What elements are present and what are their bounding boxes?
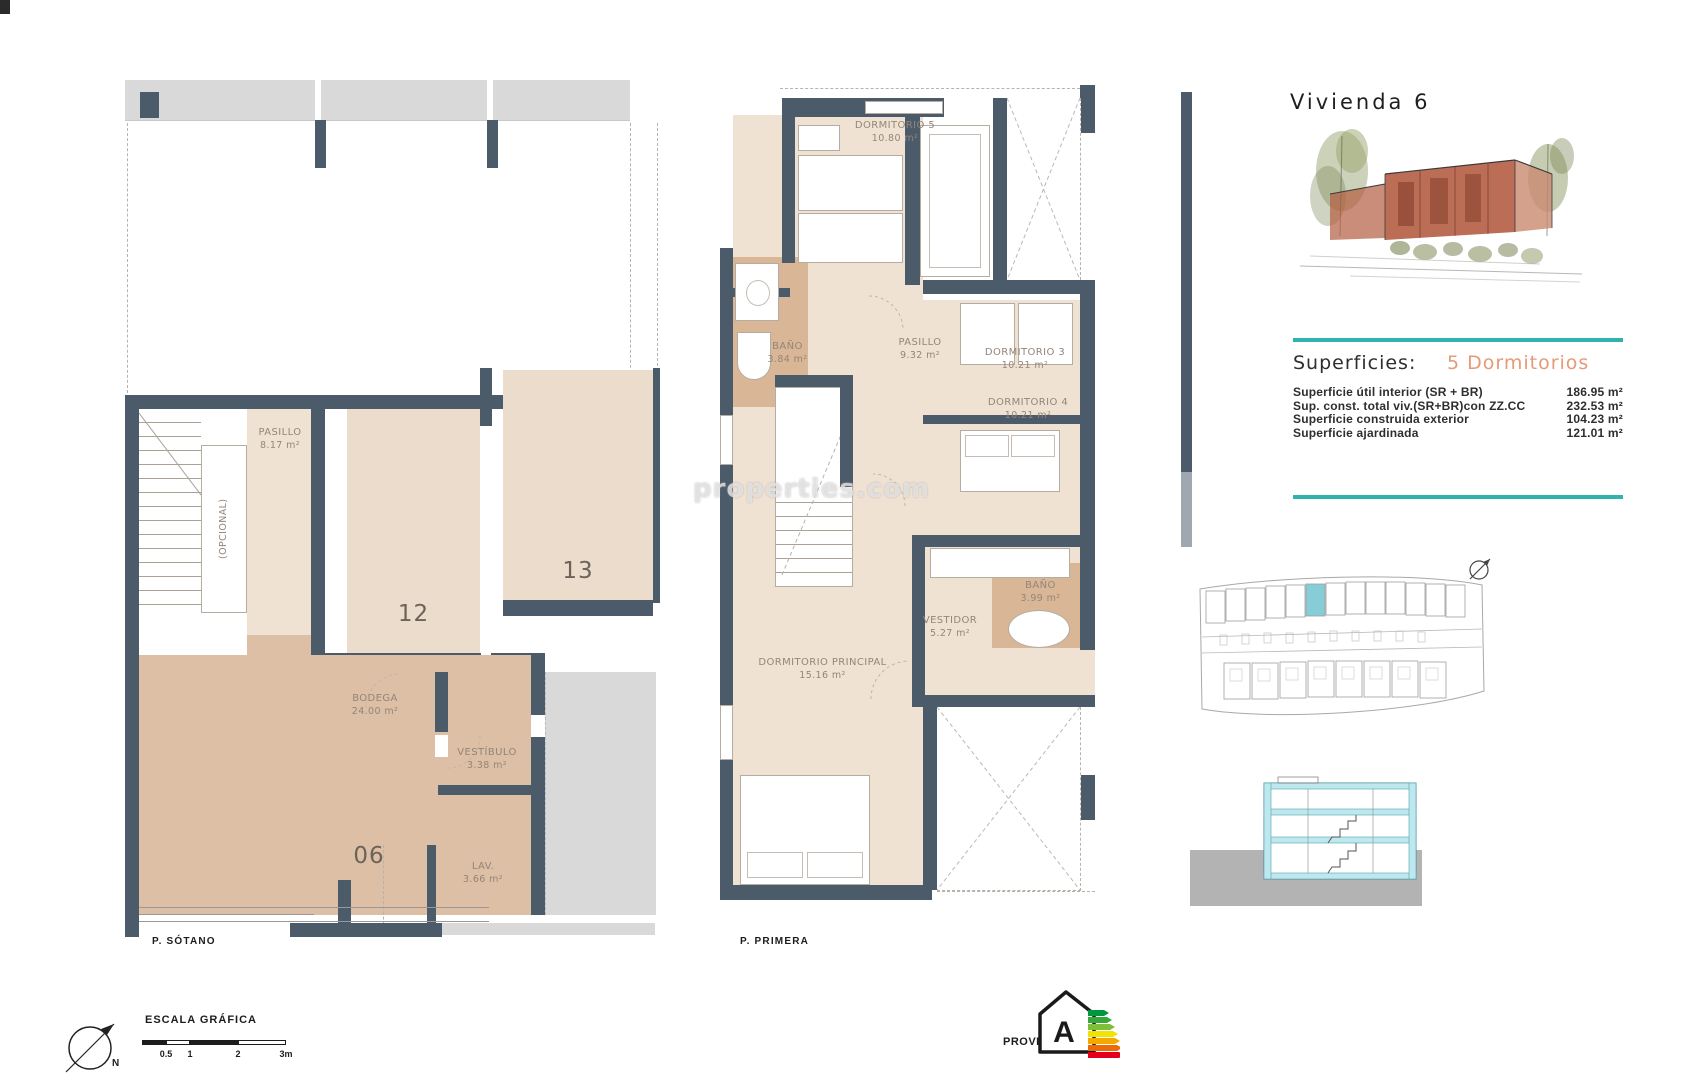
bedrooms-heading: 5 Dormitorios (1447, 352, 1589, 374)
wall-segment (775, 375, 853, 387)
bed-pillow (1011, 435, 1055, 457)
scale-tick-label: 2 (226, 1049, 250, 1059)
surface-label: Sup. const. total viv.(SR+BR)con ZZ.CC (1293, 400, 1525, 414)
room-label-pasillo: PASILLO 9.32 m² (870, 337, 970, 362)
room-label-principal: DORMITORIO PRINCIPAL 15.16 m² (740, 657, 905, 682)
wall-segment (720, 885, 932, 900)
divider-bar (1181, 92, 1192, 472)
wall-segment (487, 120, 498, 168)
site-unit-highlight (1306, 584, 1325, 616)
bed (740, 775, 870, 885)
wall-segment (1080, 85, 1095, 133)
wall-segment (840, 387, 853, 487)
plan-caption-sotano: P. SÓTANO (152, 936, 216, 947)
plot-boundary-dashed (780, 88, 1085, 89)
void-double-height (937, 707, 1081, 891)
teal-rule (1293, 338, 1623, 342)
surface-row: Superficie construida exterior 104.23 m² (1293, 413, 1623, 427)
garage-door-line (139, 914, 314, 915)
void-x-mark (937, 707, 1080, 890)
scale-tick-label: 1 (178, 1049, 202, 1059)
bed (798, 155, 903, 211)
wall-segment (503, 600, 653, 616)
scale-tick-label: 3m (274, 1049, 298, 1059)
wall-segment (125, 395, 517, 409)
band-gap (315, 80, 321, 120)
plot-boundary-dashed (127, 123, 128, 393)
surface-value: 186.95 m² (1566, 386, 1623, 400)
patio-gray (545, 672, 656, 915)
wall-segment (720, 248, 733, 900)
room-label-bano1: BAÑO 3.84 m² (750, 341, 825, 366)
wall-segment (923, 695, 937, 890)
wall-segment (480, 368, 492, 426)
watermark: properties.com (693, 474, 930, 504)
window (720, 705, 733, 760)
optional-closet: (OPCIONAL) (201, 445, 247, 613)
sidewalk-band (442, 923, 655, 935)
wall-segment (993, 98, 1007, 288)
garage-door-line (139, 907, 489, 908)
void-double-height (1007, 98, 1081, 280)
closet-inner (929, 134, 981, 268)
room-label-dorm4: DORMITORIO 4 10.21 m² (963, 397, 1093, 422)
scale-bar-segment (190, 1040, 238, 1045)
wall-segment (1080, 775, 1095, 820)
stair-diagonal (139, 409, 201, 499)
wall-segment (140, 92, 159, 118)
sidewalk-band (125, 80, 630, 121)
window (865, 101, 943, 114)
room-label-dorm5: DORMITORIO 5 10.80 m² (815, 120, 975, 145)
closet (920, 125, 990, 277)
bed (798, 213, 903, 263)
wall-segment (125, 395, 139, 937)
bed-pillow (747, 852, 803, 878)
plot-boundary-dashed (630, 123, 631, 393)
bathtub (1008, 610, 1070, 648)
floorplan-sotano: (OPCIONAL) PASILLO 8.17 m² 12 13 (125, 75, 660, 937)
house-sketch (1290, 116, 1592, 286)
sheet-corner-mark (0, 0, 10, 14)
room-label-bodega: BODEGA 24.00 m² (275, 693, 475, 718)
wall-segment (923, 280, 1095, 294)
surface-value: 121.01 m² (1566, 427, 1623, 441)
plot-boundary-dashed (937, 891, 1095, 892)
window (720, 415, 733, 465)
sink-basin (746, 280, 770, 306)
door-swing-arc (868, 295, 904, 331)
scale-heading: ESCALA GRÁFICA (145, 1014, 257, 1026)
surface-row: Sup. const. total viv.(SR+BR)con ZZ.CC 2… (1293, 400, 1623, 414)
wall-segment (315, 120, 326, 168)
wall-segment (782, 98, 795, 263)
surface-label: Superficie construida exterior (1293, 413, 1469, 427)
room-label-vestibulo: VESTÍBULO 3.38 m² (445, 747, 529, 772)
north-label: N (112, 1058, 119, 1069)
surface-label: Superficie ajardinada (1293, 427, 1419, 441)
room-label-bano2: BAÑO 3.99 m² (998, 580, 1083, 605)
wall-segment (438, 785, 533, 795)
door-opening (531, 715, 545, 737)
surface-table: Superficie útil interior (SR + BR) 186.9… (1293, 386, 1623, 440)
surface-value: 232.53 m² (1566, 400, 1623, 414)
parking-13-number: 13 (503, 558, 653, 584)
scale-bar-segment (166, 1040, 190, 1045)
wall-segment (923, 535, 1095, 547)
band-gap (487, 80, 493, 120)
room-label-dorm3: DORMITORIO 3 10.21 m² (960, 347, 1090, 372)
scale-bar-segment (142, 1040, 166, 1045)
void-x-mark (1007, 98, 1080, 280)
room-label-lav: LAV. 3.66 m² (437, 861, 529, 886)
parking-12-number: 12 (347, 601, 480, 627)
wall-segment (653, 368, 660, 603)
scale-tick-label: 0.5 (154, 1049, 178, 1059)
bathroom-sink (735, 263, 779, 321)
wall-segment (311, 409, 325, 653)
unit-06-number: 06 (333, 843, 405, 869)
energy-letter: A (1053, 1016, 1075, 1049)
divider-bar-light (1181, 472, 1192, 547)
surface-label: Superficie útil interior (SR + BR) (1293, 386, 1483, 400)
wall-segment (912, 695, 1095, 707)
scale-bar-segment (238, 1040, 286, 1045)
surface-value: 104.23 m² (1566, 413, 1623, 427)
teal-rule (1293, 495, 1623, 499)
garage-door-line (139, 921, 489, 922)
superficies-heading: Superficies: (1293, 352, 1416, 374)
surface-row: Superficie útil interior (SR + BR) 186.9… (1293, 386, 1623, 400)
plan-caption-primera: P. PRIMERA (740, 936, 809, 947)
bodega-floor (247, 635, 311, 665)
closet (930, 548, 1070, 578)
room-label-vestidor: VESTIDOR 5.27 m² (905, 615, 995, 640)
wall-segment (531, 653, 545, 915)
bed (960, 430, 1060, 492)
surface-row: Superficie ajardinada 121.01 m² (1293, 427, 1623, 441)
plan-sheet: (OPCIONAL) PASILLO 8.17 m² 12 13 (0, 0, 1700, 1080)
unit-title: Vivienda 6 (1290, 90, 1430, 114)
optional-label: (OPCIONAL) (202, 446, 246, 612)
building-section (1258, 775, 1422, 887)
bed-pillow (807, 852, 863, 878)
energy-rating-icon: A (1036, 988, 1120, 1058)
bed-pillow (965, 435, 1009, 457)
floorplan-primera: DORMITORIO 5 10.80 m² PASILLO 9.32 m² BA… (720, 85, 1095, 930)
site-plan (1190, 565, 1490, 737)
wall-segment (290, 923, 442, 937)
